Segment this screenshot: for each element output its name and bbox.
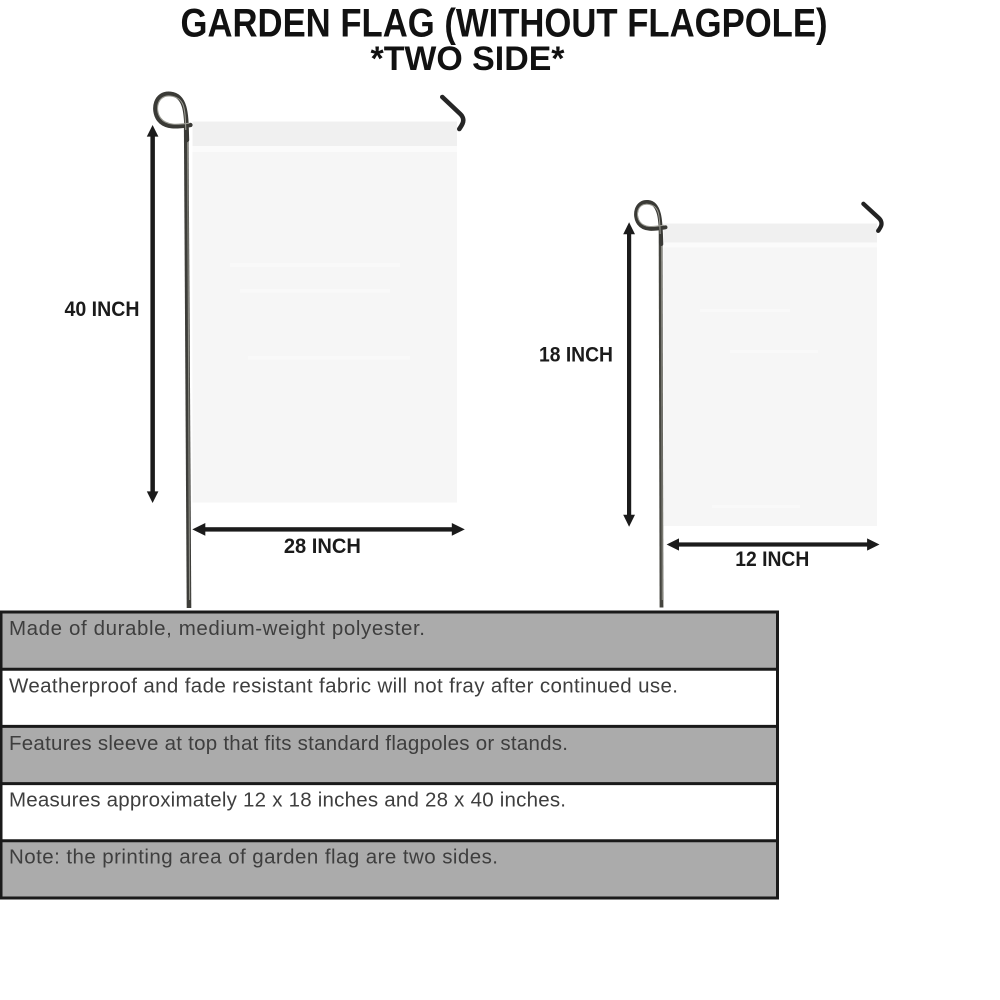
svg-text:Features sleeve at top that fi: Features sleeve at top that fits standar…	[9, 732, 568, 755]
svg-text:40 INCH: 40 INCH	[65, 297, 140, 321]
svg-text:18 INCH: 18 INCH	[539, 343, 613, 367]
svg-text:Measures approximately 12 x 18: Measures approximately 12 x 18 inches an…	[9, 789, 566, 812]
svg-text:Note: the printing area of gar: Note: the printing area of garden flag a…	[9, 846, 498, 869]
svg-text:Weatherproof and fade resistan: Weatherproof and fade resistant fabric w…	[9, 675, 678, 698]
svg-text:28 INCH: 28 INCH	[284, 534, 361, 558]
svg-text:GARDEN FLAG (WITHOUT FLAGPOLE): GARDEN FLAG (WITHOUT FLAGPOLE)	[181, 2, 828, 46]
svg-text:12 INCH: 12 INCH	[735, 547, 809, 571]
svg-text:*TWO SIDE*: *TWO SIDE*	[371, 40, 566, 78]
svg-text:Made of durable, medium-weight: Made of durable, medium-weight polyester…	[9, 617, 425, 640]
